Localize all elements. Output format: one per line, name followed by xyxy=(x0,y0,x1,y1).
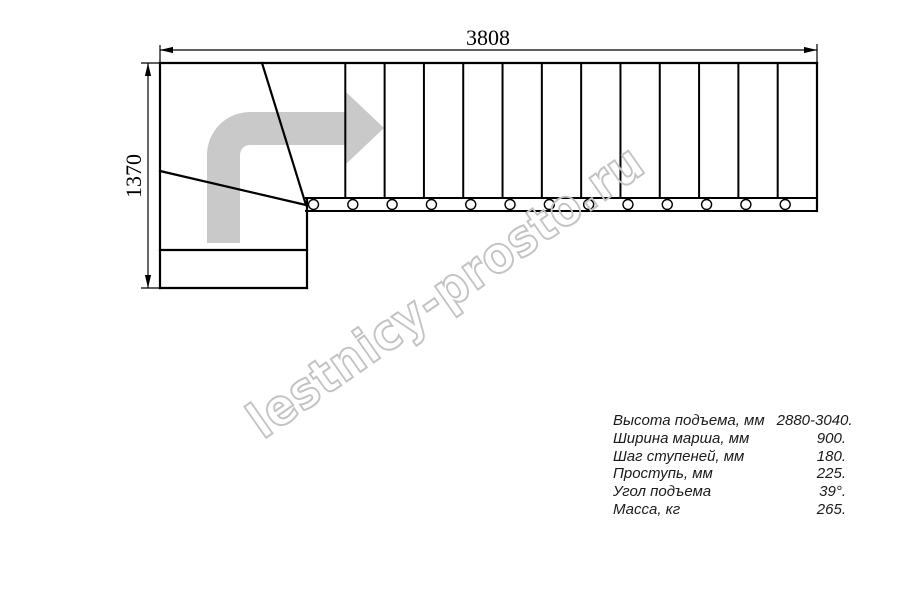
bolt-circle xyxy=(426,200,436,210)
bolt-circle xyxy=(741,200,751,210)
bolt-circle xyxy=(466,200,476,210)
direction-arrow-icon xyxy=(207,91,384,243)
spec-row-height: Высота подъема, мм 2880-3040. xyxy=(613,412,846,430)
dimension-top-value: 3808 xyxy=(466,25,510,50)
bolt-circle xyxy=(662,200,672,210)
dimension-left-value: 1370 xyxy=(121,154,146,198)
bolt-circle xyxy=(309,200,319,210)
spec-row-width: Ширина марша, мм 900. xyxy=(613,430,846,448)
spec-row-angle: Угол подъема 39°. xyxy=(613,483,846,501)
technical-drawing-page: 3808 1370 lestnicy-prosto.ru Высота подъ… xyxy=(0,0,900,600)
bolt-circle xyxy=(348,200,358,210)
bolt-circle xyxy=(702,200,712,210)
dimension-top: 3808 xyxy=(160,25,817,63)
spec-label: Угол подъема xyxy=(613,483,711,501)
spec-row-step: Шаг ступеней, мм 180. xyxy=(613,448,846,466)
bolt-circle xyxy=(780,200,790,210)
spec-label: Проступь, мм xyxy=(613,465,713,483)
spec-label: Масса, кг xyxy=(613,501,680,519)
spec-value: 2880-3040. xyxy=(765,412,853,430)
bolt-circle xyxy=(387,200,397,210)
spec-label: Высота подъема, мм xyxy=(613,412,765,430)
spec-label: Ширина марша, мм xyxy=(613,430,749,448)
spec-label: Шаг ступеней, мм xyxy=(613,448,744,466)
spec-value: 265. xyxy=(805,501,846,519)
specs-table: Высота подъема, мм 2880-3040. Ширина мар… xyxy=(613,412,846,519)
spec-value: 900. xyxy=(805,430,846,448)
spec-value: 180. xyxy=(805,448,846,466)
spec-value: 39°. xyxy=(807,483,846,501)
dimension-left: 1370 xyxy=(121,63,160,288)
spec-row-tread: Проступь, мм 225. xyxy=(613,465,846,483)
spec-value: 225. xyxy=(805,465,846,483)
spec-row-mass: Масса, кг 265. xyxy=(613,501,846,519)
